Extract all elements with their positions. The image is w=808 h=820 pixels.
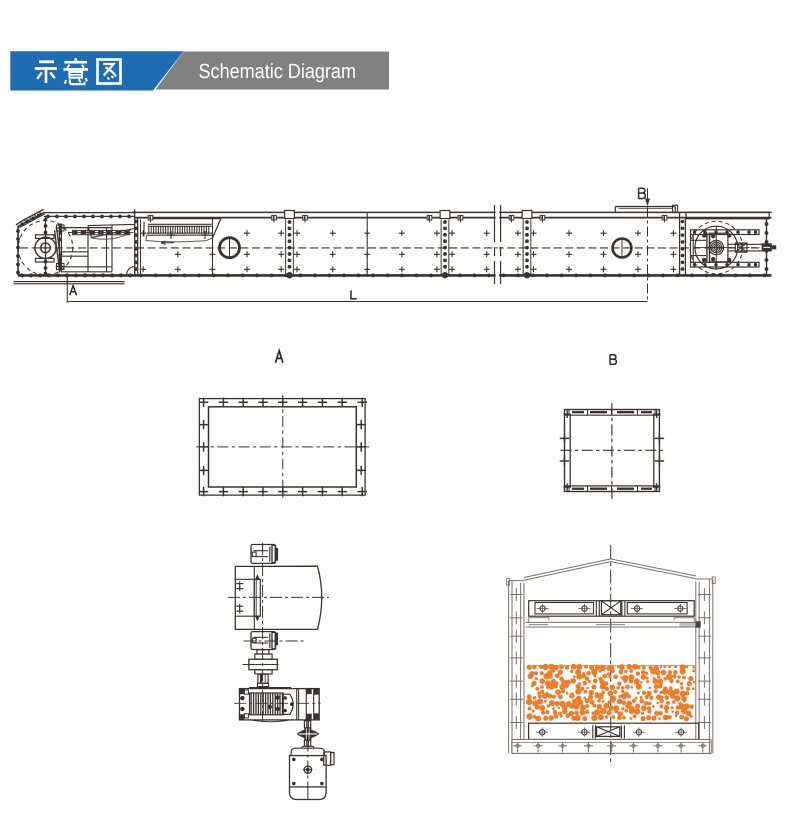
svg-text:Schematic Diagram: Schematic Diagram bbox=[199, 60, 357, 83]
